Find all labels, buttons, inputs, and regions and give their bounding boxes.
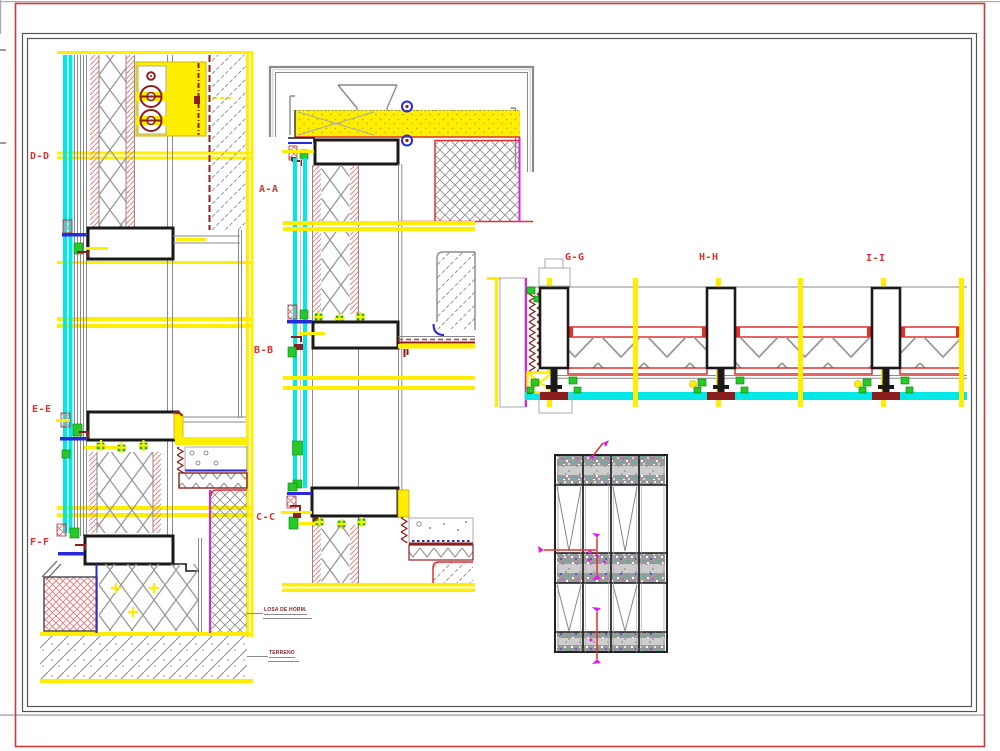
section-label-bb: B-B <box>254 346 274 356</box>
annotation-losa-de-horm: LOSA DE HORM. <box>264 607 307 615</box>
section-a-b-c <box>270 67 533 592</box>
annotation-terreno: TERRENO <box>269 650 295 658</box>
section-label-ee: E-E <box>32 405 52 415</box>
section-label-hh: H-H <box>699 253 719 263</box>
section-label-ii: I-I <box>866 254 886 264</box>
section-plan-g-h-i <box>487 259 967 413</box>
section-label-ff: F-F <box>30 538 50 548</box>
section-label-aa: A-A <box>259 185 279 195</box>
cad-sheet: D-D A-A E-E B-B F-F C-C G-G H-H I-I LOSA… <box>0 0 1000 751</box>
section-label-dd: D-D <box>30 152 50 162</box>
section-d-e-f <box>40 51 312 683</box>
elevation-panel <box>555 455 667 652</box>
section-label-gg: G-G <box>565 253 585 263</box>
cad-drawing <box>0 0 1000 751</box>
section-label-cc: C-C <box>256 513 276 523</box>
